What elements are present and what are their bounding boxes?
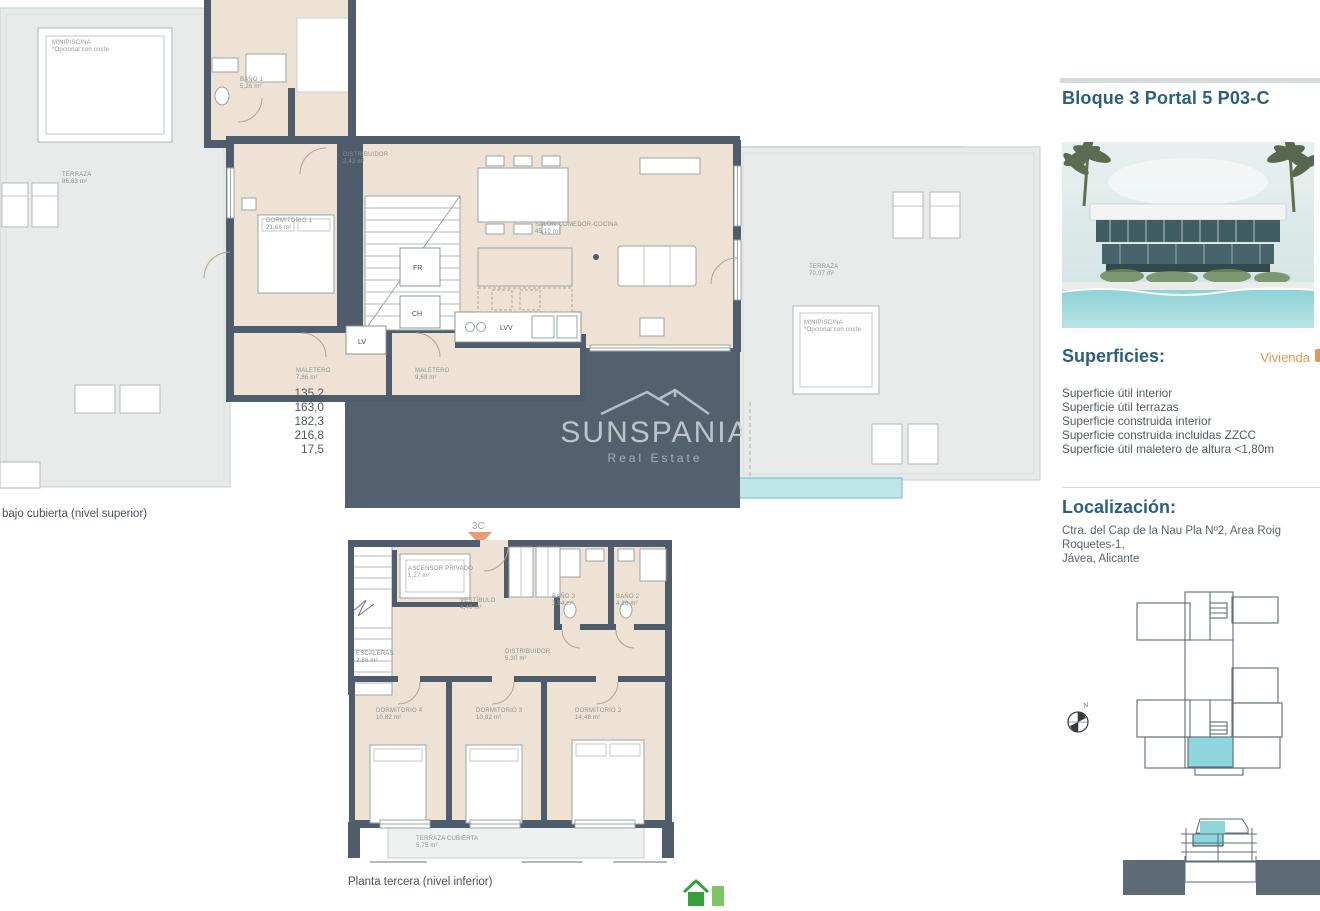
address: Ctra. del Cap de la Nau Pla Nº2, Area Ro… [1062, 524, 1320, 566]
lv-label: LV [358, 339, 366, 346]
maletero2-name: MALETERO [415, 368, 450, 374]
terraza-right-name: TERRAZA [809, 264, 838, 270]
superficies-heading: Superficies: [1062, 346, 1165, 367]
building-render-image [1062, 142, 1314, 328]
dorm4-name: DORMITORIO 4 [376, 708, 423, 714]
superficie-label: Superficie útil maletero de altura <1,80… [1062, 442, 1274, 456]
lounger [75, 385, 115, 413]
maletero1-name: MALETERO [296, 368, 331, 374]
banyo1-name: BAÑO 1 [240, 76, 264, 83]
salon-area: 45,10 m² [535, 229, 560, 235]
svg-text:TERRAZA70,07 m²: TERRAZA70,07 m² [809, 264, 838, 277]
lower-staircase [352, 545, 392, 695]
minipiscina-left-note: *Opcional con coste [52, 47, 110, 53]
superficie-label: Superficie útil interior [1062, 386, 1172, 400]
appliance-fr: FR [400, 248, 440, 286]
superficie-row: Superficie construida incluidas ZZCC 216… [1062, 428, 1320, 442]
lounger [908, 424, 938, 464]
maletero1-area: 7,86 m² [296, 375, 318, 381]
unit-title: Bloque 3 Portal 5 P03-C [1062, 88, 1320, 109]
highlighted-unit [1188, 737, 1233, 767]
lower-plan-caption: Planta tercera (nivel inferior) [348, 876, 492, 888]
superficie-row: Superficie útil maletero de altura <1,80… [1062, 442, 1320, 456]
terraza-cubierta-name: TERRAZA CUBIERTA [416, 836, 478, 842]
compass-north-label: N [1082, 701, 1090, 710]
appliance-ch: CH [400, 296, 440, 328]
superficie-row: Superficie útil interior 135,2 [1062, 386, 1320, 400]
address-line-1: Ctra. del Cap de la Nau Pla Nº2, Area Ro… [1062, 524, 1320, 552]
superficie-value: 182,3 [200, 414, 324, 428]
fr-label: FR [413, 265, 422, 272]
banyo3-area: 3,94 m² [552, 601, 574, 607]
maletero2-area: 9,69 m² [415, 375, 437, 381]
light-well [297, 18, 355, 92]
vestibulo-name: VESTÍBULO [460, 597, 496, 604]
banyo2-area: 4,16 m² [616, 601, 638, 607]
ascensor-name: ASCENSOR PRIVADO [408, 566, 473, 572]
lower-floor-plan: 3C TERRAZA CUBIERTA5,75 m² [330, 510, 730, 895]
banyo3-name: BAÑO 3 [552, 593, 576, 600]
banyo1-area: 5,26 m² [240, 84, 262, 90]
unit-marker-label: 3C [472, 521, 485, 532]
superficie-value: 17,5 [200, 442, 324, 456]
vestibulo-area: 4,40 m² [460, 605, 482, 611]
superficie-row: Superficie útil terrazas 163,0 [1062, 400, 1320, 414]
dorm2-area: 14,48 m² [575, 715, 600, 721]
svg-text:TERRAZA86,63 m²: TERRAZA86,63 m² [62, 172, 91, 185]
superficie-label: Superficie construida incluidas ZZCC [1062, 428, 1256, 442]
terraza-cubierta-area: 5,75 m² [416, 843, 438, 849]
terraza-left-name: TERRAZA [62, 172, 91, 178]
lounger [872, 424, 902, 464]
minipiscina-right: MINIPISCINA*Opcional con coste [793, 306, 879, 394]
section-divider [1062, 487, 1320, 488]
terraza-cubierta: TERRAZA CUBIERTA5,75 m² [370, 826, 667, 863]
bed-dormitorio-4 [370, 745, 426, 823]
superficie-label: Superficie útil terrazas [1062, 400, 1179, 414]
compass-icon: N [1068, 701, 1090, 732]
bed-dormitorio-3 [466, 745, 522, 823]
minipiscina-right-name: MINIPISCINA [804, 320, 843, 326]
escaleras-area: 2,86 m² [356, 658, 378, 664]
upper-floor-plan: MINIPISCINA*Opcional con coste TERRAZA86… [0, 0, 1050, 515]
banyo2-name: BAÑO 2 [616, 593, 640, 600]
escaleras-name: ESCALERAS [356, 651, 394, 657]
superficie-row: Superficie construida interior 182,3 [1062, 414, 1320, 428]
minipiscina-left: MINIPISCINA*Opcional con coste [38, 28, 172, 142]
lower-windows [380, 820, 635, 828]
lower-distribuidor-area: 5,30 m² [505, 656, 527, 662]
distribuidor-area: 2,43 m² [343, 159, 365, 165]
terraza-right-area: 70,07 m² [809, 271, 834, 277]
superficie-value: 163,0 [200, 400, 324, 414]
dorm2-name: DORMITORIO 2 [575, 708, 622, 714]
minipiscina-left-name: MINIPISCINA [52, 40, 91, 46]
appliance-lv: LV [346, 326, 386, 354]
upper-terrace-left: MINIPISCINA*Opcional con coste TERRAZA86… [0, 8, 230, 488]
pool-strip [737, 478, 902, 498]
floorplan-brochure-page: { "sidebar": { "title": "Bloque 3 Portal… [0, 0, 1320, 895]
kitchen-counter: LVV [455, 312, 581, 342]
address-line-2: Jávea, Alicante [1062, 552, 1320, 566]
site-plan [1137, 592, 1282, 775]
green-house-icon [680, 876, 726, 906]
dwelling-label: Vivienda [1230, 350, 1310, 365]
location-diagrams: N [1060, 575, 1320, 895]
dorm1-area: 21,66 m² [266, 225, 291, 231]
dwelling-label-cut-glyph [1315, 349, 1320, 362]
green-logo-fragment [680, 876, 726, 906]
lvv-label: LVV [500, 325, 513, 332]
lounger [120, 385, 160, 413]
ground-right [1256, 860, 1320, 895]
lounger [2, 183, 28, 227]
lounger [893, 192, 923, 238]
ascensor-area: 1,27 m² [408, 573, 430, 579]
ch-label: CH [412, 311, 422, 318]
dorm3-name: DORMITORIO 3 [476, 708, 523, 714]
upper-terrace-right: MINIPISCINA*Opcional con coste TERRAZA70… [737, 147, 1040, 498]
dorm3-area: 10,82 m² [476, 715, 501, 721]
localizacion-heading: Localización: [1062, 497, 1176, 518]
building-render-art [1062, 142, 1314, 328]
terraza-left-area: 86,63 m² [62, 179, 87, 185]
highlighted-floor-upper [1200, 821, 1225, 834]
lounger [32, 183, 58, 227]
superficie-label: Superficie construida interior [1062, 414, 1212, 428]
lower-distribuidor-name: DISTRIBUIDOR [505, 649, 551, 655]
building-elevation [1123, 819, 1320, 895]
lounger [930, 192, 960, 238]
minipiscina-right-note: *Opcional con coste [804, 327, 862, 333]
planter [0, 462, 40, 488]
ground-left [1123, 860, 1185, 895]
bed-dormitorio-2 [572, 740, 644, 824]
distribuidor-name: DISTRIBUIDOR [343, 152, 389, 158]
dorm1-name: DORMITORIO 1 [266, 218, 313, 224]
salon-name: SALÓN-COMEDOR-COCINA [535, 221, 618, 228]
superficie-value: 135,2 [200, 386, 324, 400]
upper-plan-caption: bajo cubierta (nivel superior) [2, 508, 147, 520]
sidebar-top-edge [1060, 78, 1320, 83]
dorm4-area: 10,82 m² [376, 715, 401, 721]
superficie-value: 216,8 [200, 428, 324, 442]
